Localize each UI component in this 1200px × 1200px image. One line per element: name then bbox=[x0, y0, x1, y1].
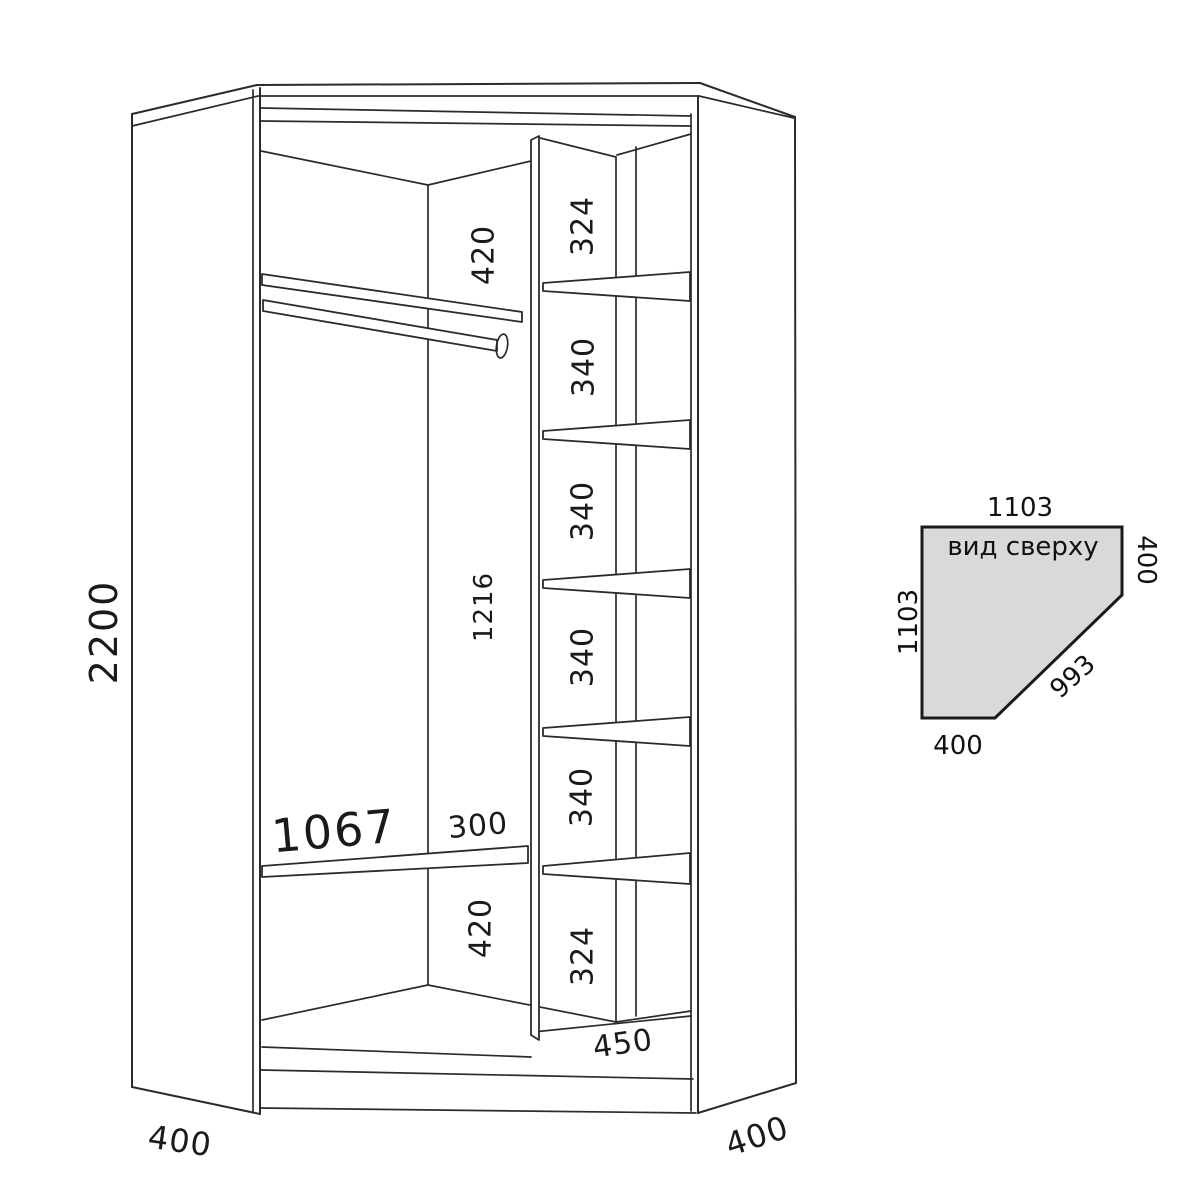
dim-hang-section-height: 1216 bbox=[469, 572, 499, 642]
dim-overall-height: 2200 bbox=[82, 580, 126, 685]
dim-bottom-gap: 420 bbox=[464, 898, 499, 958]
top-view-title: вид сверху bbox=[947, 532, 1098, 562]
plinth-top-edge bbox=[261, 1070, 693, 1079]
column-back-ceiling-edge bbox=[540, 138, 616, 157]
top-view-inset: вид сверху 1103 400 1103 993 400 bbox=[894, 493, 1161, 761]
back-wall-ceiling-edge bbox=[428, 161, 531, 185]
dim-col-gap-3: 340 bbox=[566, 481, 601, 541]
dim-col-gap-4: 340 bbox=[566, 627, 601, 687]
plinth-bottom-edge bbox=[260, 1108, 696, 1113]
dim-right-side-depth: 400 bbox=[721, 1108, 794, 1164]
top-view-dim-right: 400 bbox=[1131, 535, 1161, 585]
dim-col-gap-6: 324 bbox=[566, 926, 601, 986]
left-panel-top-outer-edge bbox=[132, 85, 257, 114]
top-rail-lower-line bbox=[261, 121, 691, 126]
dim-lower-shelf-width: 1067 bbox=[269, 799, 398, 864]
dim-lower-shelf-depth: 300 bbox=[446, 806, 509, 846]
top-view-dim-left: 1103 bbox=[894, 589, 924, 655]
left-wall-ceiling-edge bbox=[261, 151, 428, 185]
left-wall-floor-edge bbox=[262, 985, 428, 1020]
top-view-dim-bottom: 400 bbox=[933, 731, 983, 761]
dim-col-gap-1: 324 bbox=[566, 196, 601, 256]
dim-left-side-depth: 400 bbox=[146, 1118, 215, 1165]
floor-front-edge-left bbox=[262, 1047, 531, 1057]
dim-top-gap: 420 bbox=[467, 225, 502, 285]
wardrobe-drawing: 2200 420 1216 1067 300 420 324 340 340 3… bbox=[82, 83, 796, 1164]
carcass-outline bbox=[132, 83, 796, 1114]
clothes-rail-end-cap bbox=[495, 333, 510, 358]
right-wall-ceiling-edge bbox=[617, 134, 691, 155]
top-view-dim-top: 1103 bbox=[987, 493, 1053, 523]
right-panel-outer-edge bbox=[795, 117, 796, 1083]
dim-col-width: 450 bbox=[591, 1022, 656, 1065]
dim-col-gap-2: 340 bbox=[567, 337, 602, 397]
top-panel-outer-edge bbox=[257, 83, 700, 85]
corner-wardrobe-dimension-diagram: 2200 420 1216 1067 300 420 324 340 340 3… bbox=[0, 0, 1200, 1200]
left-panel-top-inner-edge bbox=[132, 96, 258, 126]
top-rail-upper-line bbox=[261, 108, 691, 116]
divider-panel-face bbox=[531, 136, 539, 1040]
dim-col-gap-5: 340 bbox=[565, 767, 600, 827]
divider-panel bbox=[531, 136, 539, 1040]
back-wall-floor-edge bbox=[428, 985, 616, 1022]
left-panel-bottom-edge bbox=[132, 1087, 260, 1114]
diagram-canvas: 2200 420 1216 1067 300 420 324 340 340 3… bbox=[0, 0, 1200, 1200]
